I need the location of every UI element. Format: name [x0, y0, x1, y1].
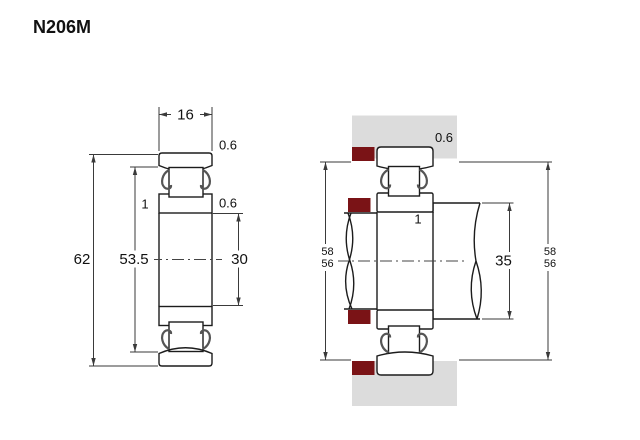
- left-view: 16 62 53.5: [70, 107, 252, 367]
- spacer-outer-top: [352, 147, 375, 161]
- label-inner-ring-chamfer: 1: [414, 212, 421, 227]
- mounted-roller-bottom: [389, 326, 420, 356]
- label-shoulder-diameter: 53.5: [119, 251, 148, 268]
- label-abutment-right-top: 58: [544, 246, 556, 258]
- label-bore: 30: [231, 251, 248, 268]
- label-outer-chamfer: 0.6: [219, 138, 237, 153]
- label-abutment-left-bottom: 56: [321, 258, 333, 270]
- spacer-outer-bottom: [352, 361, 375, 375]
- label-width: 16: [177, 107, 194, 124]
- mounted-roller-top: [389, 167, 420, 197]
- label-abutment-right-bottom: 56: [544, 258, 556, 270]
- roller-top: [169, 168, 203, 198]
- label-inner-chamfer: 0.6: [219, 196, 237, 211]
- label-outer-diameter: 62: [74, 251, 91, 268]
- drawing-canvas: N206M 16: [0, 0, 640, 440]
- right-view: 58 56 58 56 35 0.6 1: [317, 116, 560, 407]
- page-title: N206M: [33, 17, 91, 37]
- dimension-width-16: 16: [159, 107, 212, 152]
- label-abutment-left-top: 58: [321, 246, 333, 258]
- dimension-shaft-35: 35: [482, 203, 518, 319]
- spacer-inner-bottom: [348, 310, 371, 324]
- label-inner-chamfer-left: 1: [141, 197, 148, 212]
- label-shaft-diameter: 35: [495, 253, 512, 270]
- mounted-outer-ring-bottom: [377, 352, 433, 375]
- spacer-inner-top: [348, 198, 371, 212]
- dimension-shoulder-diameter-53.5: 53.5: [116, 167, 158, 352]
- label-housing-chamfer: 0.6: [435, 130, 453, 145]
